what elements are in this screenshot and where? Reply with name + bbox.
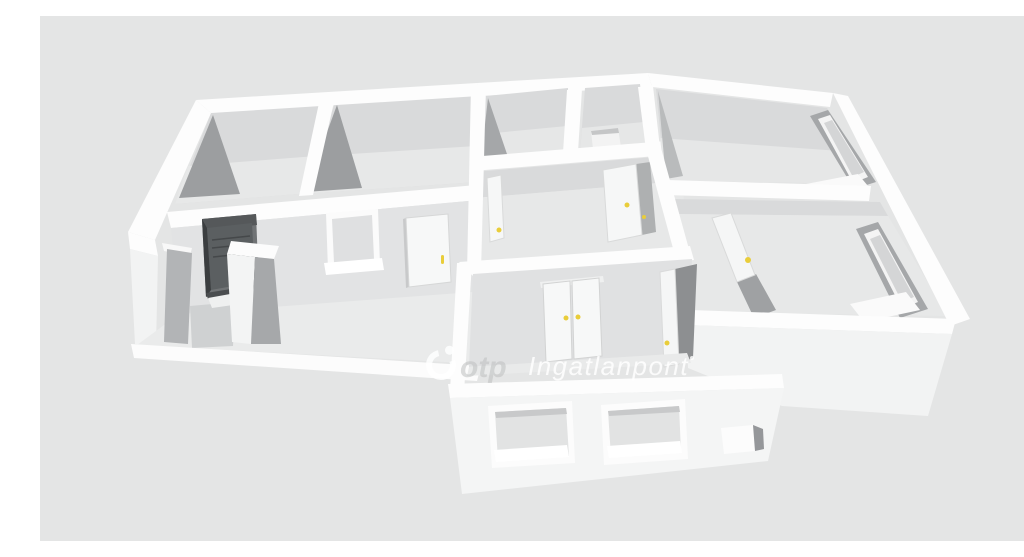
double-door-leaf-left bbox=[543, 281, 572, 362]
vestibule-left-wall-face bbox=[164, 249, 192, 344]
double-door-handle-right-icon bbox=[576, 315, 581, 320]
hallway-floor-shadow bbox=[190, 302, 235, 348]
watermark-trademark-dot bbox=[690, 356, 694, 360]
front-window-small-opening bbox=[721, 425, 755, 454]
middle-right-door-handle2-icon bbox=[642, 215, 646, 219]
hallway-window-glass bbox=[332, 215, 374, 263]
hallway-window bbox=[324, 209, 384, 275]
floorplan-3d-view: otp Ingatlanpont bbox=[40, 16, 1024, 541]
middle-left-door-handle-icon bbox=[497, 228, 502, 233]
front-window-2 bbox=[601, 399, 688, 465]
hallway-door-leaf bbox=[406, 214, 451, 287]
watermark: otp Ingatlanpont bbox=[424, 344, 694, 384]
lower-open-door-handle-icon bbox=[665, 341, 670, 346]
watermark-name-text: Ingatlanpont bbox=[528, 351, 689, 381]
hallway-interior-door bbox=[403, 214, 451, 288]
vestibule-right-wall bbox=[227, 241, 281, 344]
middle-left-door-leaf bbox=[487, 175, 504, 242]
watermark-brand-text: otp bbox=[460, 351, 507, 384]
floorplan-canvas: otp Ingatlanpont bbox=[40, 16, 1024, 541]
middle-room-left-door bbox=[487, 175, 504, 242]
front-window-small bbox=[721, 425, 764, 454]
middle-right-door-leaf bbox=[603, 164, 642, 242]
room-small-2 bbox=[580, 84, 648, 152]
middle-right-door-handle-icon bbox=[625, 203, 630, 208]
middle-room-right-door bbox=[603, 162, 656, 242]
hallway-door-handle-icon bbox=[441, 255, 444, 264]
right-room-door-handle-icon bbox=[745, 257, 751, 263]
front-window-1 bbox=[488, 401, 575, 468]
double-door-handle-left-icon bbox=[564, 316, 569, 321]
